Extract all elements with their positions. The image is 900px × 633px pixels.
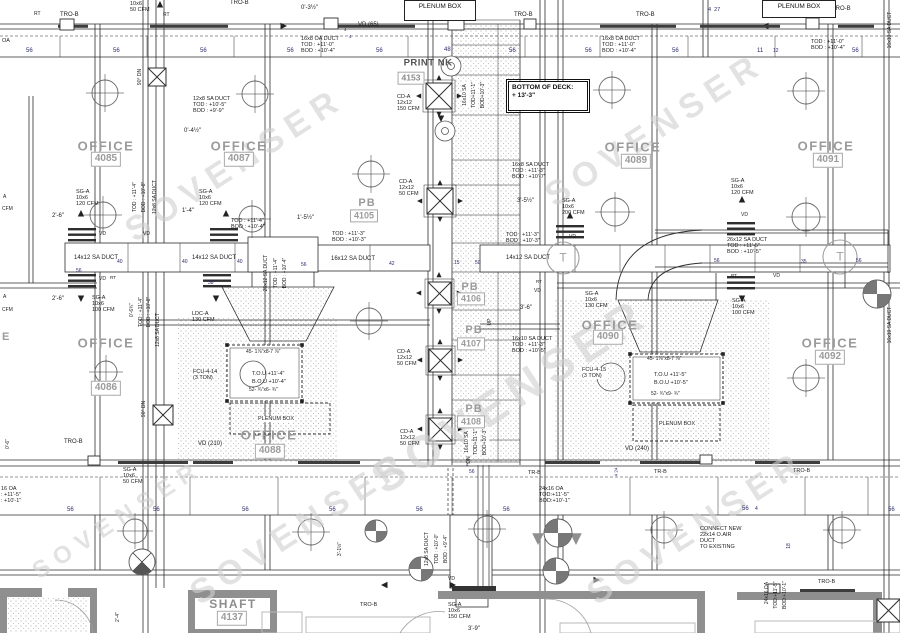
linear-diffuser-icon (600, 25, 676, 28)
linear-diffuser-icon (118, 461, 188, 464)
floor-plan-sheet: SOVENSERSOVENSERSOVENSERSOVENSERSOVENSER… (0, 0, 900, 633)
floor-plan-linework (0, 0, 900, 633)
quartered-circle-icon (544, 519, 572, 547)
linear-diffuser-icon (755, 461, 820, 464)
bottom-room-walls (0, 588, 900, 633)
stipple-regions (8, 24, 770, 633)
linear-diffuser-icon (700, 25, 780, 28)
linear-diffuser-icon (298, 461, 360, 464)
column-bubble-icon (236, 75, 274, 113)
linear-diffuser-icon (838, 25, 874, 28)
column-bubble-icon (350, 302, 388, 340)
column-bubble-icon (823, 511, 861, 549)
column-bubble-icon (292, 513, 330, 551)
column-bubble-icon (787, 359, 825, 397)
column-bubble-icon (352, 155, 390, 193)
linear-diffuser-icon (545, 461, 600, 464)
quartered-circle-icon (409, 557, 433, 581)
column-bubble-icon (595, 192, 635, 232)
quartered-circle-icon (863, 280, 891, 308)
x-circle-icon (129, 549, 155, 575)
round-diffuser-icon (435, 121, 455, 141)
round-diffuser-icon (441, 56, 461, 76)
column-bubble-icon (89, 355, 123, 389)
column-bubble-icon (787, 72, 825, 110)
column-bubble-icon (786, 197, 826, 237)
column-bubble-icon (645, 511, 683, 549)
linear-diffuser-icon (150, 25, 228, 28)
linear-diffuser-icon (640, 461, 700, 464)
column-bubble-icon (86, 74, 124, 112)
column-bubble-icon (593, 71, 631, 109)
linear-diffuser-icon (335, 25, 415, 28)
linear-diffuser-icon (193, 461, 233, 464)
quartered-circle-icon (543, 558, 569, 584)
quartered-circle-icon (365, 520, 387, 542)
